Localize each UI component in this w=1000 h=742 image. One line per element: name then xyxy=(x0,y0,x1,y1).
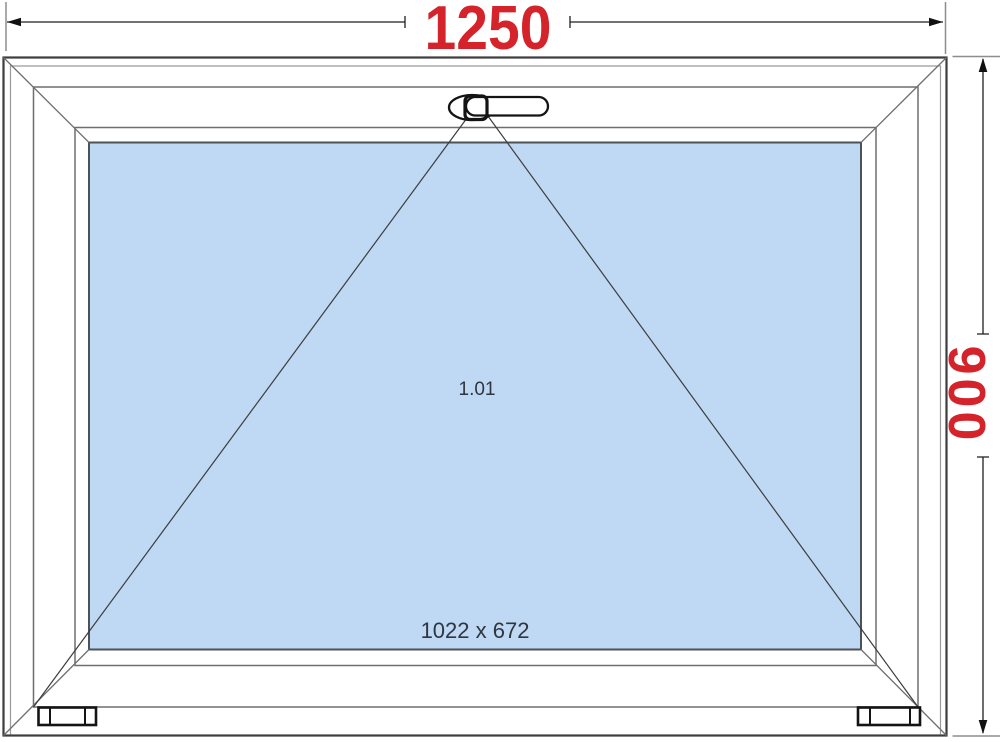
arrowhead-up-icon xyxy=(979,58,988,72)
bracket-body xyxy=(39,708,97,726)
width-dimension-label: 1250 xyxy=(414,0,561,57)
arrowhead-right-icon xyxy=(929,18,943,27)
position-number-label: 1.01 xyxy=(417,376,537,404)
arrowhead-down-icon xyxy=(979,720,988,734)
glazing-size-label: 1022 x 672 xyxy=(385,616,565,646)
window-handle-icon xyxy=(449,95,548,120)
arrowhead-left-icon xyxy=(7,18,21,27)
height-dimension-label: 900 xyxy=(944,325,988,465)
handle-lever xyxy=(466,97,548,116)
mounting-bracket-left xyxy=(39,708,97,726)
mounting-bracket-right xyxy=(858,708,920,726)
window-diagram: 1250 900 1.01 1022 x 672 xyxy=(0,0,1000,742)
